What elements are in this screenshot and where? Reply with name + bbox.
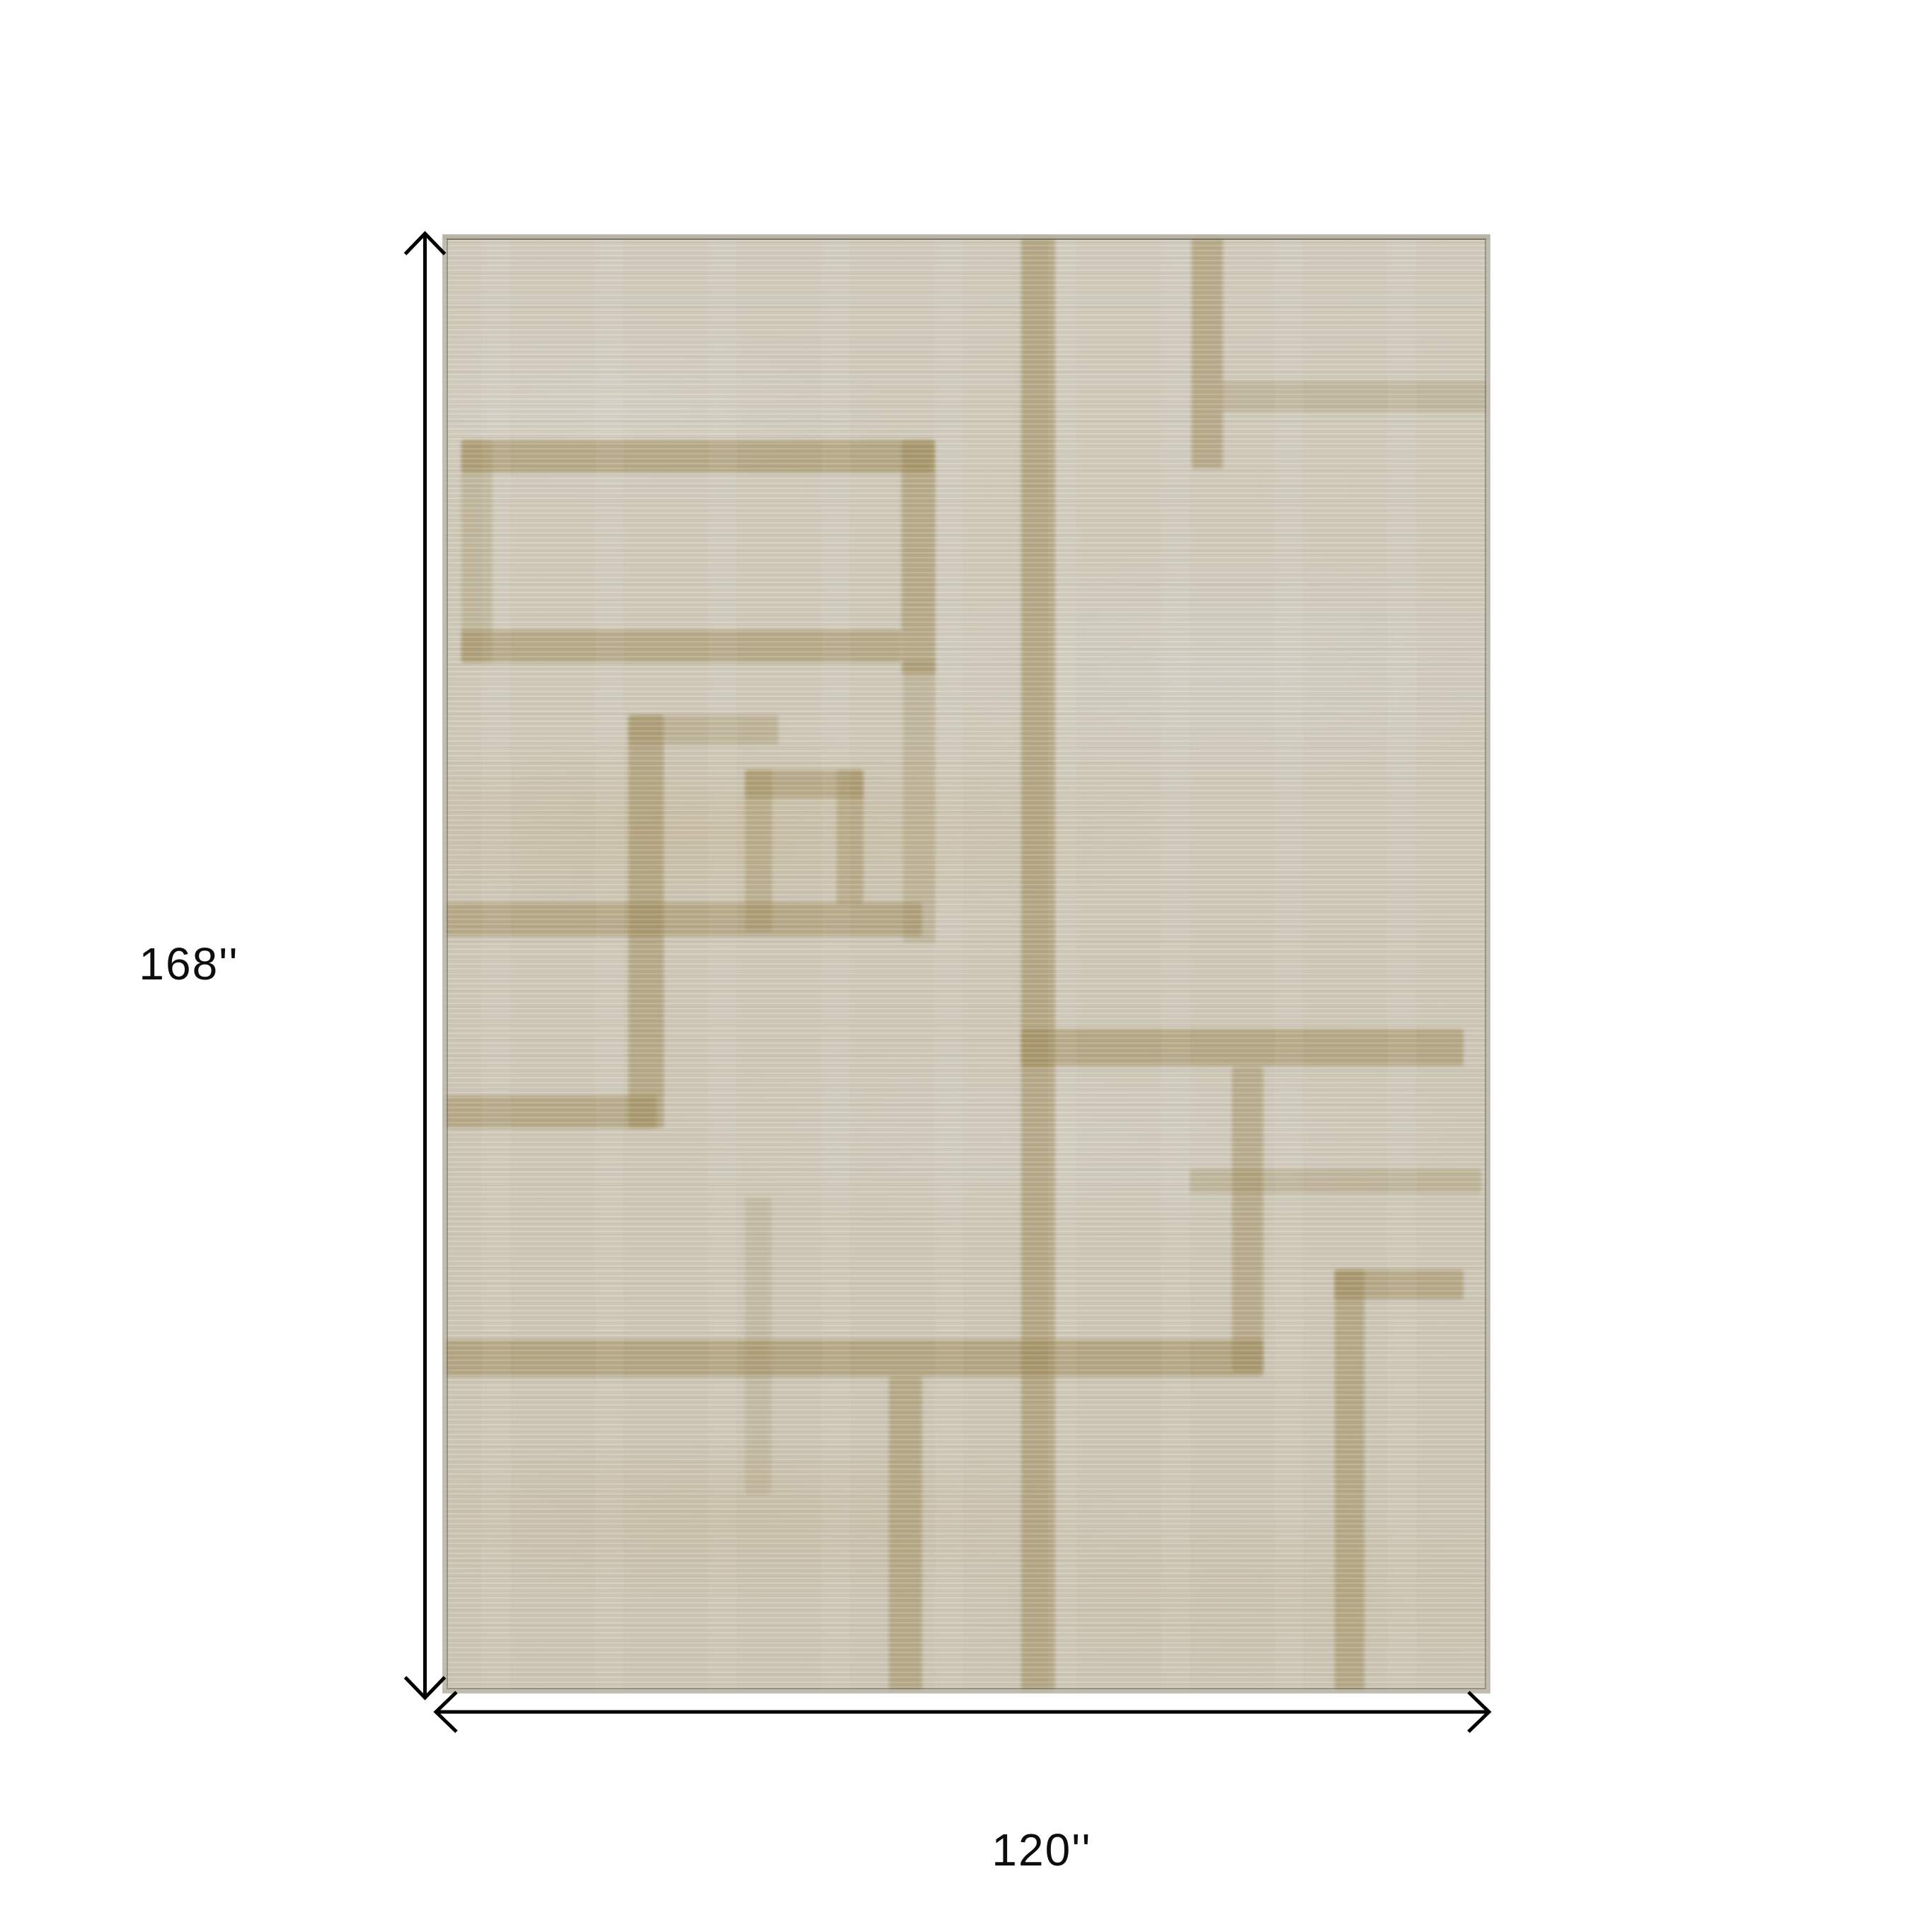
width-dimension-label: 120''	[991, 1824, 1091, 1876]
vertical-dimension-arrow	[406, 234, 445, 1698]
product-dimension-diagram: 168'' 120''	[0, 0, 1932, 1932]
horizontal-dimension-arrow	[436, 1692, 1489, 1732]
dimension-arrows	[0, 0, 1932, 1932]
height-dimension-label: 168''	[139, 938, 238, 990]
